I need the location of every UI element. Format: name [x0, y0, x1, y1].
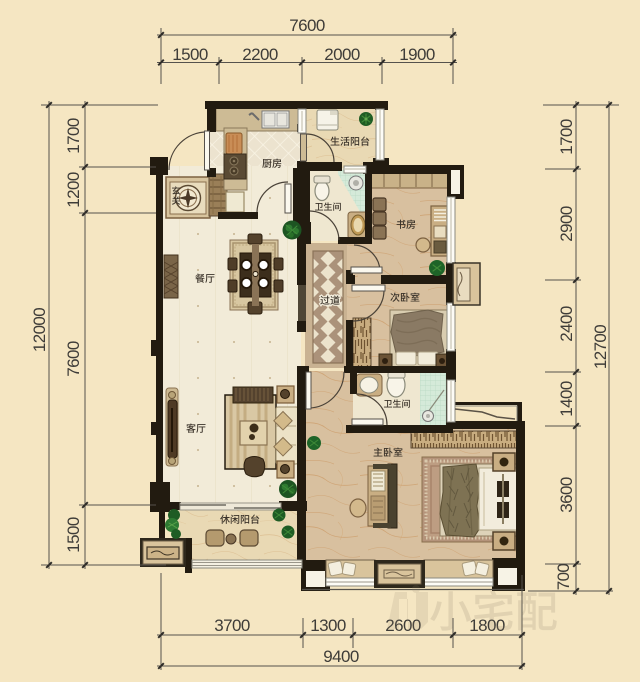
svg-text:1700: 1700	[64, 118, 83, 154]
svg-text:7600: 7600	[289, 16, 325, 35]
svg-text:2200: 2200	[242, 45, 278, 64]
svg-text:1500: 1500	[172, 45, 208, 64]
svg-text:1700: 1700	[557, 119, 576, 155]
svg-text:1400: 1400	[557, 381, 576, 417]
svg-text:12000: 12000	[30, 308, 49, 352]
svg-text:700: 700	[554, 564, 573, 591]
svg-text:9400: 9400	[323, 647, 359, 666]
svg-text:2000: 2000	[324, 45, 360, 64]
svg-text:7600: 7600	[64, 341, 83, 377]
svg-text:3600: 3600	[557, 477, 576, 513]
svg-text:1500: 1500	[64, 517, 83, 553]
svg-text:1300: 1300	[310, 616, 346, 635]
svg-text:3700: 3700	[214, 616, 250, 635]
svg-text:1200: 1200	[64, 172, 83, 208]
svg-text:1900: 1900	[399, 45, 435, 64]
svg-text:12700: 12700	[591, 325, 610, 369]
svg-text:2400: 2400	[557, 306, 576, 342]
svg-text:1800: 1800	[469, 616, 505, 635]
svg-text:2900: 2900	[557, 206, 576, 242]
